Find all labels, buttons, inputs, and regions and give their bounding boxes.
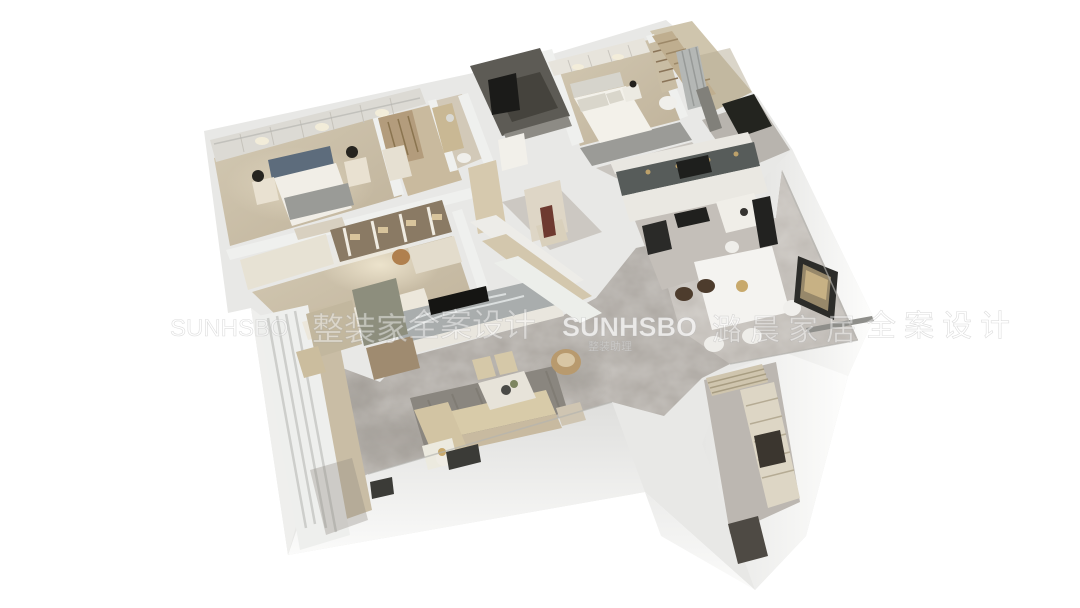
- svg-text:全案设计: 全案设计: [408, 307, 536, 343]
- svg-text:整装助理: 整装助理: [588, 339, 632, 353]
- svg-text:整装家: 整装家: [312, 311, 408, 347]
- svg-text:全案设计: 全案设计: [866, 310, 1018, 343]
- svg-text:SUNHSBO: SUNHSBO: [170, 315, 289, 342]
- svg-text:潞晨家居: 潞晨家居: [712, 314, 864, 347]
- svg-text:SUNHSBO: SUNHSBO: [562, 312, 697, 342]
